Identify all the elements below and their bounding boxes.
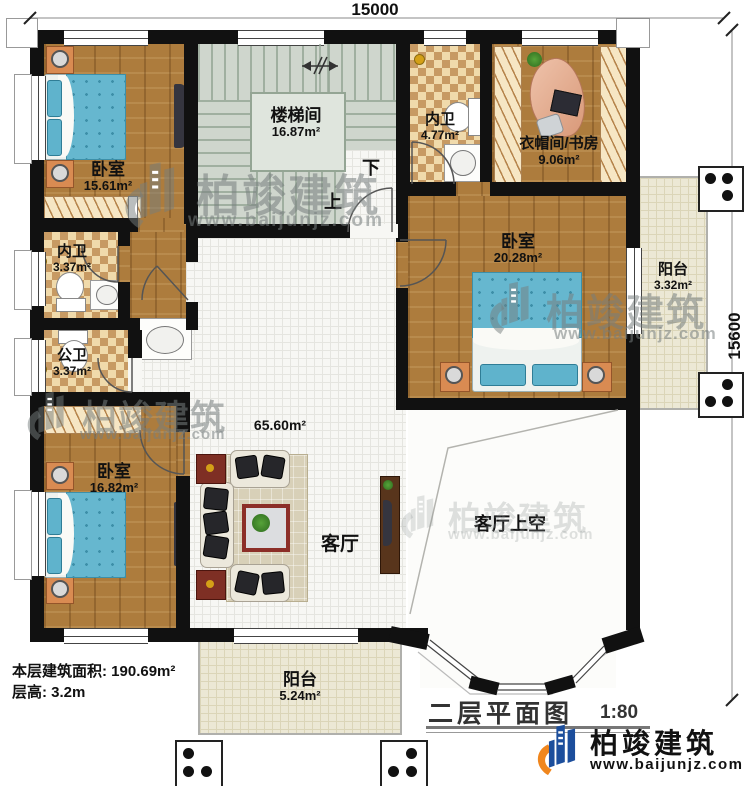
room-area: 5.24m² [279,689,320,704]
room-name: 衣帽间/书房 [519,136,598,153]
floor-area-info: 本层建筑面积: 190.69m² [12,660,175,681]
room-label-bedroom-bottomleft: 卧室 16.82m² [62,462,166,496]
watermark-logo-icon [490,282,529,334]
column-marker [698,166,744,212]
room-label-stairwell: 楼梯间 16.87m² [252,106,340,140]
column-dot [722,173,733,184]
watermark-website: www.baijunjz.com [188,210,384,232]
room-name: 楼梯间 [271,106,322,125]
dimension-right: 15600 [725,301,745,371]
room-name: 内卫 [57,244,87,261]
column-dot [183,748,194,759]
room-label-bedroom-right: 卧室 20.28m² [464,232,572,266]
room-area: 4.77m² [421,129,459,142]
floor-height-info: 层高: 3.2m [12,681,85,702]
column-dot [705,173,716,184]
room-area: 20.28m² [494,251,542,266]
living-room-area-label: 65.60m² [238,418,322,434]
room-area: 3.37m² [53,261,91,274]
room-label-bathroom-public: 公卫 3.37m² [40,348,104,378]
stair-linework [302,44,338,92]
column-dot [705,396,716,407]
column-dot [201,766,212,777]
column-dot [722,190,733,201]
company-website: www.baijunjz.com [590,756,743,773]
column-marker [175,740,223,786]
column-dot [722,379,733,390]
room-label-study: 衣帽间/书房 9.06m² [494,136,624,167]
watermark-website: www.baijunjz.com [80,426,225,443]
room-label-bathroom-mid: 内卫 3.37m² [40,244,104,274]
column-dot [388,766,399,777]
room-name: 卧室 [91,160,125,179]
room-name: 阳台 [283,670,317,689]
room-label-bedroom-topleft: 卧室 15.61m² [56,160,160,194]
watermark-website: www.baijunjz.com [554,324,717,344]
watermark-website: www.baijunjz.com [448,526,593,543]
room-area: 9.06m² [538,153,579,168]
column-marker [698,372,744,418]
room-label-balcony-bottom: 阳台 5.24m² [256,670,344,704]
bay-window [390,634,642,694]
column-dot [406,766,417,777]
room-label-bathroom-top: 内卫 4.77m² [404,112,476,142]
dimension-lines [24,12,738,706]
column-dot [183,766,194,777]
room-name: 公卫 [57,348,87,365]
watermark-logo-icon [28,392,64,441]
room-name: 卧室 [97,462,131,481]
room-area: 3.37m² [53,365,91,378]
room-name: 内卫 [425,112,455,129]
room-name: 客厅 [321,534,359,555]
dimension-top: 15000 [332,0,418,20]
column-dot [722,396,733,407]
living-room-name-label: 客厅 [308,534,372,555]
room-area: 16.82m² [90,481,138,496]
room-area: 15.61m² [84,179,132,194]
company-logo-icon [534,718,590,780]
room-area: 16.87m² [272,125,320,140]
room-area: 65.60m² [254,418,306,434]
column-dot [406,748,417,759]
room-name: 卧室 [501,232,535,251]
plan-scale: 1:80 [600,702,638,724]
column-marker [380,740,428,786]
floor-plan: 卧室 15.61m² 楼梯间 16.87m² 内卫 4.77m² 衣帽间/书房 … [0,0,750,786]
room-name: 阳台 [658,262,688,279]
